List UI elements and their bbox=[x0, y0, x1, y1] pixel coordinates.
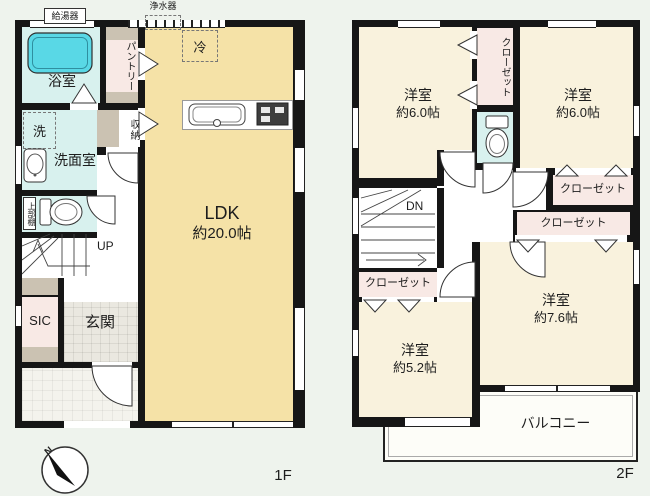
window bbox=[352, 108, 359, 148]
stairs-1f-area bbox=[22, 238, 97, 278]
nw-hall-wall bbox=[437, 150, 444, 186]
door-opening bbox=[516, 168, 546, 175]
window-tick bbox=[556, 385, 558, 392]
door-opening bbox=[362, 297, 434, 302]
window bbox=[352, 330, 359, 356]
washer-box: 洗 bbox=[23, 112, 56, 149]
door-opening bbox=[555, 168, 631, 175]
door-opening bbox=[515, 235, 627, 242]
fridge-box: 冷 bbox=[182, 30, 218, 62]
window bbox=[548, 20, 596, 28]
bath-label: 浴室 bbox=[32, 74, 92, 89]
room-bedroom-nw-ext bbox=[359, 150, 437, 178]
floorplan-page: 洗 冷 浄水器 給湯器 浴室 パントリー 収納 洗面室 上部棚 UP LDK 約… bbox=[0, 0, 650, 496]
porch-opening bbox=[64, 421, 130, 428]
water-heater-label: 給湯器 bbox=[44, 8, 86, 24]
north-needle-icon bbox=[47, 452, 75, 486]
hallway-2f-center bbox=[472, 170, 513, 242]
room-ldk bbox=[145, 27, 293, 421]
stairs-down-label: DN bbox=[406, 200, 436, 213]
bedroom-se-size: 約7.6帖 bbox=[521, 311, 591, 325]
window bbox=[294, 308, 305, 390]
bedroom-se-label: 洋室 bbox=[526, 293, 586, 308]
porch-area bbox=[22, 368, 138, 421]
door-opening bbox=[470, 81, 477, 109]
window bbox=[352, 198, 359, 234]
entrance-hall-white bbox=[64, 278, 97, 302]
door-opening bbox=[106, 147, 138, 155]
storage-label: 収納 bbox=[120, 113, 139, 146]
closet-b-label: クローゼット bbox=[517, 217, 630, 229]
ldk-label: LDK bbox=[182, 204, 262, 224]
sic-shelf-bottom bbox=[22, 347, 58, 362]
sic-label: SIC bbox=[22, 314, 58, 328]
window bbox=[15, 146, 22, 184]
stairs-up-label: UP bbox=[97, 240, 129, 253]
door-opening bbox=[470, 31, 477, 59]
window bbox=[633, 106, 640, 136]
washer-label: 洗 bbox=[33, 121, 46, 140]
hallway-2f-ne bbox=[513, 175, 546, 210]
floor2-label: 2F bbox=[608, 466, 642, 483]
window bbox=[405, 417, 470, 427]
compass-north-label: N bbox=[40, 443, 58, 460]
bedroom-ne-size: 約6.0帖 bbox=[543, 106, 613, 120]
window bbox=[15, 306, 22, 326]
fridge-label: 冷 bbox=[193, 37, 206, 56]
door-opening bbox=[138, 48, 145, 80]
door-opening bbox=[70, 103, 98, 110]
pantry-label: パントリー bbox=[109, 40, 135, 92]
ldk-size-label: 約20.0帖 bbox=[172, 226, 272, 243]
window-tick bbox=[232, 421, 234, 428]
closet-c-label: クローゼット bbox=[359, 277, 437, 289]
entrance-label: 玄関 bbox=[70, 315, 130, 332]
storage-side-gray bbox=[97, 110, 119, 147]
bedroom-ne-label: 洋室 bbox=[548, 88, 608, 103]
floor1-label: 1F bbox=[266, 468, 300, 485]
window bbox=[294, 148, 305, 192]
upper-shelf-label: 上部棚 bbox=[23, 197, 36, 230]
closet-a-label: クローゼット bbox=[553, 183, 633, 195]
water-purifier-box bbox=[145, 15, 181, 30]
kitchen-counter bbox=[182, 100, 293, 130]
bedroom-nw-size: 約6.0帖 bbox=[383, 106, 453, 120]
pantry-shelf-top bbox=[106, 27, 138, 40]
front-door-opening bbox=[92, 362, 132, 368]
room-entrance bbox=[64, 302, 138, 362]
window bbox=[398, 20, 440, 28]
door-opening bbox=[138, 108, 145, 140]
water-purifier-label: 浄水器 bbox=[140, 2, 186, 12]
balcony-label: バルコニー bbox=[498, 416, 613, 431]
window bbox=[633, 250, 640, 284]
hallway-1f bbox=[97, 155, 138, 302]
bedroom-nw-label: 洋室 bbox=[388, 88, 448, 103]
room-bath bbox=[22, 27, 100, 103]
bedroom-sw-size: 約5.2帖 bbox=[380, 361, 450, 375]
understairs-gray bbox=[22, 278, 58, 295]
window bbox=[294, 70, 305, 100]
closet-vertical-label: クローゼット bbox=[480, 30, 510, 103]
room-toilet-2f bbox=[477, 112, 513, 163]
stairs-hall-wall bbox=[437, 188, 444, 268]
washroom-label: 洗面室 bbox=[40, 153, 110, 168]
bedroom-sw-label: 洋室 bbox=[385, 343, 445, 358]
pantry-shelf-bottom bbox=[106, 92, 138, 103]
